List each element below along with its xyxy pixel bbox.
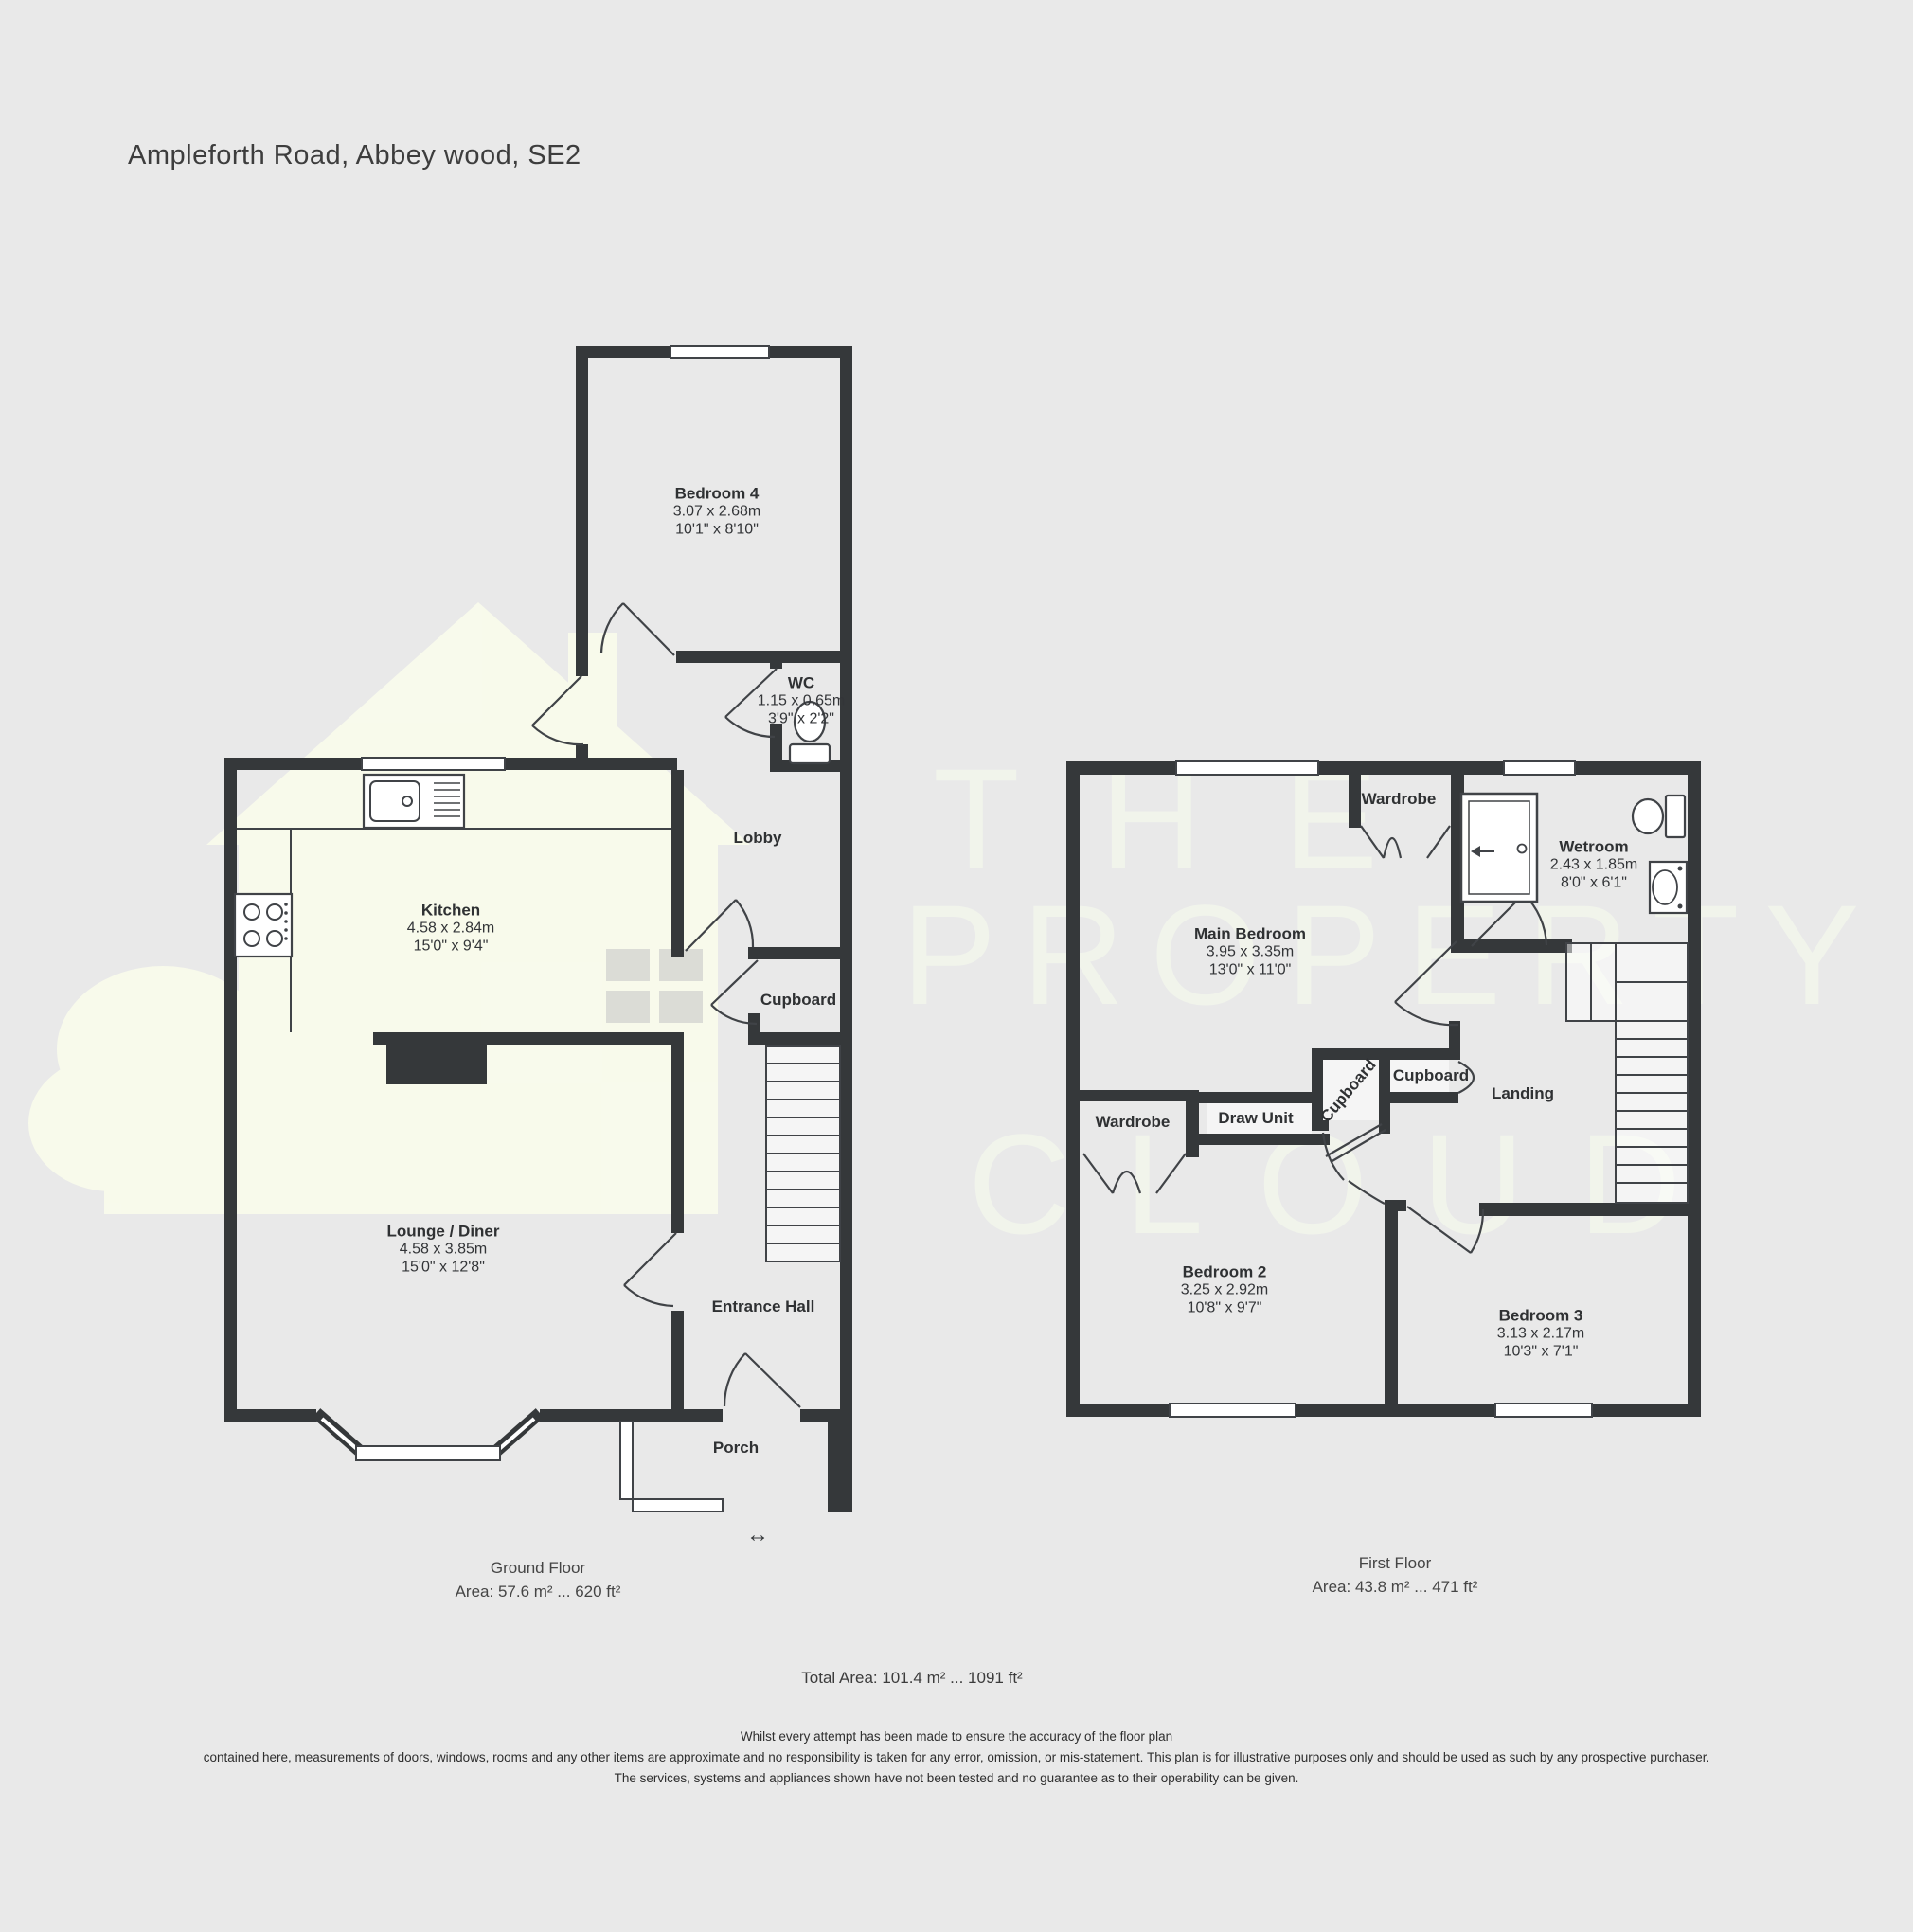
toilet <box>1633 796 1685 837</box>
ground-floor-room-label-lounge-diner: Lounge / Diner4.58 x 3.85m15'0" x 12'8" <box>387 1223 500 1277</box>
ground-floor-caption: Ground Floor Area: 57.6 m² ... 620 ft² <box>456 1556 621 1603</box>
porch-front-window <box>633 1499 723 1512</box>
watermark-property: PROPERTY <box>902 875 1885 1034</box>
ground-floor-name: Ground Floor <box>456 1556 621 1580</box>
page-title: Ampleforth Road, Abbey wood, SE2 <box>128 140 581 171</box>
wetroom-window <box>1504 761 1575 775</box>
ground-floor-label-cupboard: Cupboard <box>760 991 836 1010</box>
ground-floor-label-entrance-hall: Entrance Hall <box>712 1297 815 1316</box>
door-swing-icon: ↔ <box>746 1522 769 1548</box>
ground-floor-label-lobby: Lobby <box>734 829 782 848</box>
first-floor-label-draw-unit: Draw Unit <box>1218 1109 1293 1128</box>
first-floor-label-cupboard: Cupboard <box>1393 1066 1469 1085</box>
ground-floor-room-label-wc: WC1.15 x 0.65m3'9" x 2'2" <box>758 674 846 728</box>
first-floor-label-wardrobe: Wardrobe <box>1096 1113 1171 1132</box>
disclaimer-line-3: The services, systems and appliances sho… <box>0 1771 1913 1785</box>
shower-enclosure <box>1461 794 1537 902</box>
first-floor-name: First Floor <box>1313 1551 1478 1575</box>
bedroom2-window <box>1170 1404 1296 1417</box>
chimney-breast <box>386 1032 487 1084</box>
ground-floor-stairs <box>766 1046 840 1261</box>
floorplan-drawing: THE PROPERTY CLOUD <box>0 0 1913 1932</box>
kitchen-window <box>362 758 505 770</box>
hob-unit <box>235 894 292 957</box>
front-door <box>724 1353 800 1407</box>
first-floor-label-wardrobe: Wardrobe <box>1362 790 1437 809</box>
ground-floor-area: Area: 57.6 m² ... 620 ft² <box>456 1580 621 1603</box>
first-floor-room-label-bedroom-3: Bedroom 33.13 x 2.17m10'3" x 7'1" <box>1497 1307 1585 1361</box>
ground-floor-label-porch: Porch <box>713 1439 759 1458</box>
bedroom4-window <box>670 346 769 358</box>
first-floor-room-label-main-bedroom: Main Bedroom3.95 x 3.35m13'0" x 11'0" <box>1194 925 1306 979</box>
first-floor-caption: First Floor Area: 43.8 m² ... 471 ft² <box>1313 1551 1478 1599</box>
main-bedroom-window <box>1176 761 1318 775</box>
total-area: Total Area: 101.4 m² ... 1091 ft² <box>801 1669 1022 1688</box>
bedroom3-window <box>1495 1404 1592 1417</box>
first-floor-room-label-wetroom: Wetroom2.43 x 1.85m8'0" x 6'1" <box>1550 838 1638 892</box>
floorplan-page: THE PROPERTY CLOUD <box>0 0 1913 1932</box>
first-floor-room-label-bedroom-2: Bedroom 23.25 x 2.92m10'8" x 9'7" <box>1181 1263 1269 1317</box>
ground-floor-room-label-bedroom-4: Bedroom 43.07 x 2.68m10'1" x 8'10" <box>673 485 761 539</box>
first-floor-label-landing: Landing <box>1492 1084 1554 1103</box>
ground-floor-room-label-kitchen: Kitchen4.58 x 2.84m15'0" x 9'4" <box>407 902 495 956</box>
house-logo-watermark <box>28 602 750 1214</box>
porch-side-window <box>620 1422 633 1499</box>
property-cloud-watermark: THE PROPERTY CLOUD <box>28 602 1885 1263</box>
disclaimer-line-2: contained here, measurements of doors, w… <box>0 1750 1913 1764</box>
basin <box>1650 862 1687 913</box>
first-floor-area: Area: 43.8 m² ... 471 ft² <box>1313 1575 1478 1599</box>
bay-window <box>316 1413 540 1460</box>
lounge-door <box>624 1233 676 1306</box>
disclaimer-line-1: Whilst every attempt has been made to en… <box>0 1729 1913 1744</box>
